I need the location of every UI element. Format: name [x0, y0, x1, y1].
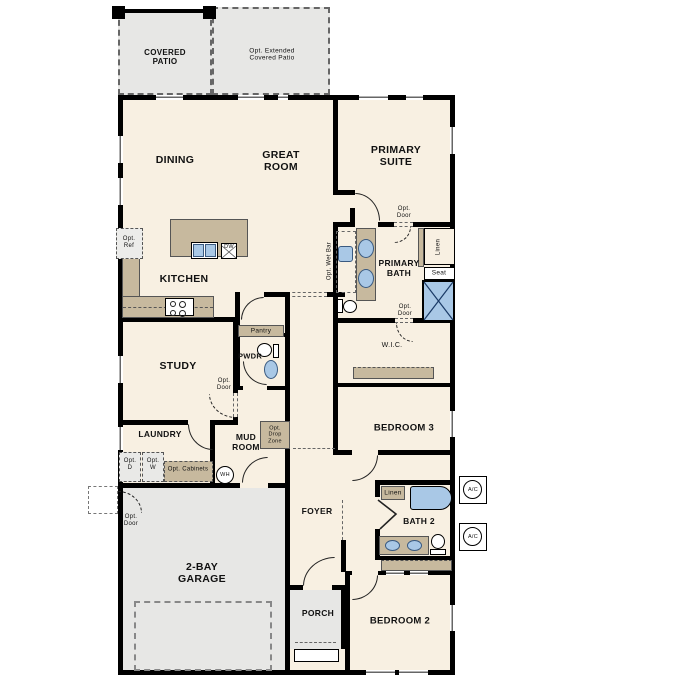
room-label-bedroom2: BEDROOM 2: [370, 617, 430, 628]
wall: [333, 190, 355, 195]
opt-door-box: [88, 486, 118, 514]
closet-shelf: [353, 367, 434, 379]
wall: [333, 383, 455, 387]
window: [238, 95, 264, 100]
room-label-bedroom3: BEDROOM 3: [374, 424, 434, 435]
window: [118, 178, 123, 205]
wet-bar-sink: [338, 246, 353, 262]
door-opening: [243, 386, 267, 390]
window: [399, 670, 428, 675]
ac-label: A/C: [468, 487, 478, 493]
window: [450, 605, 455, 631]
bedroom2-closet-strip: [381, 560, 452, 571]
wall: [213, 420, 238, 425]
kitchen-sink-basin: [205, 244, 216, 257]
cased-opening: [287, 292, 327, 297]
opt-cabinets-label: Opt. Cabinets: [168, 467, 209, 474]
door-opening: [355, 222, 378, 227]
room-label-porch: PORCH: [302, 609, 334, 619]
wall: [235, 292, 240, 390]
wall: [341, 540, 346, 572]
porch-edge-dashed: [295, 642, 336, 644]
room-label-pantry: Pantry: [251, 327, 272, 334]
toilet-tank: [430, 549, 446, 555]
room-label-garage: 2-BAY GARAGE: [178, 561, 226, 585]
dishwasher-label: DW: [224, 244, 234, 250]
vanity-sink: [407, 540, 422, 551]
burner: [170, 301, 176, 307]
vanity-sink: [385, 540, 400, 551]
room-label-great-room: GREAT ROOM: [262, 149, 299, 173]
wall: [341, 590, 346, 649]
water-heater-label: WH: [220, 472, 230, 478]
opt-wet-bar-label: Opt. Wet Bar: [327, 242, 334, 280]
patio-beam: [116, 9, 214, 13]
wall: [118, 420, 188, 425]
opt-wet-bar-zone: [336, 231, 356, 293]
window: [118, 356, 123, 383]
opt-w-label: Opt. W: [147, 458, 160, 472]
window: [118, 136, 123, 163]
cased-opening-dashed: [342, 500, 344, 540]
opt-door-label: Opt. Door: [124, 514, 138, 528]
bathtub: [410, 486, 452, 510]
window: [366, 670, 395, 675]
garage-door-recess: [134, 601, 272, 671]
toilet-bowl: [431, 534, 445, 549]
window: [118, 427, 123, 450]
window: [278, 95, 288, 100]
room-label-study: STUDY: [159, 360, 196, 372]
opt-door-label: Opt. Door: [398, 304, 412, 318]
linen-label: Linen: [436, 239, 443, 255]
window: [450, 127, 455, 154]
burner: [179, 301, 186, 308]
floor-plan: COVERED PATIO Opt. Extended Covered Pati…: [0, 0, 687, 687]
window: [156, 95, 183, 100]
door-opening: [240, 483, 268, 488]
burner: [179, 310, 186, 317]
opt-door-label: Opt. Door: [397, 206, 411, 220]
window: [410, 571, 428, 575]
wall: [333, 95, 338, 193]
burner: [170, 310, 176, 316]
linen-label: Linen: [384, 489, 401, 496]
wall: [375, 480, 455, 485]
patio-post: [112, 6, 125, 19]
window: [359, 95, 388, 100]
seat-label: Seat: [432, 269, 447, 276]
room-label-dining: DINING: [156, 154, 195, 166]
room-label-extended-patio: Opt. Extended Covered Patio: [249, 48, 294, 63]
room-label-primary-suite: PRIMARY SUITE: [371, 144, 421, 168]
opt-ref-label: Opt. Ref: [123, 236, 136, 250]
opt-drop-zone-label: Opt. Drop Zone: [268, 426, 282, 445]
toilet-bowl: [343, 300, 357, 313]
window: [386, 571, 404, 575]
toilet-tank: [273, 344, 279, 358]
cased-opening-dashed: [293, 448, 335, 451]
room-label-foyer: FOYER: [302, 507, 333, 517]
vanity-sink: [358, 269, 374, 288]
room-label-laundry: LAUNDRY: [138, 430, 181, 440]
window: [406, 95, 423, 100]
wall: [375, 485, 380, 497]
room-label-wic: W.I.C.: [382, 342, 403, 350]
porch-steps: [294, 649, 339, 662]
room-label-pwdr: PWDR: [238, 353, 262, 362]
room-label-kitchen: KITCHEN: [160, 273, 209, 285]
room-label-bath2: BATH 2: [403, 517, 435, 527]
patio-post: [203, 6, 216, 19]
shower: [422, 280, 455, 322]
opt-door-label: Opt. Door: [217, 378, 231, 392]
wall: [285, 292, 290, 390]
kitchen-sink-basin: [193, 244, 204, 257]
room-label-primary-bath: PRIMARY BATH: [379, 259, 420, 279]
opt-d-label: Opt. D: [124, 458, 137, 472]
porch-floor: [290, 590, 341, 649]
room-label-mud-room: MUD ROOM: [232, 433, 260, 453]
window: [450, 411, 455, 437]
vanity-sink: [358, 239, 374, 258]
room-label-covered-patio: COVERED PATIO: [144, 48, 186, 66]
ac-label: A/C: [468, 534, 478, 540]
